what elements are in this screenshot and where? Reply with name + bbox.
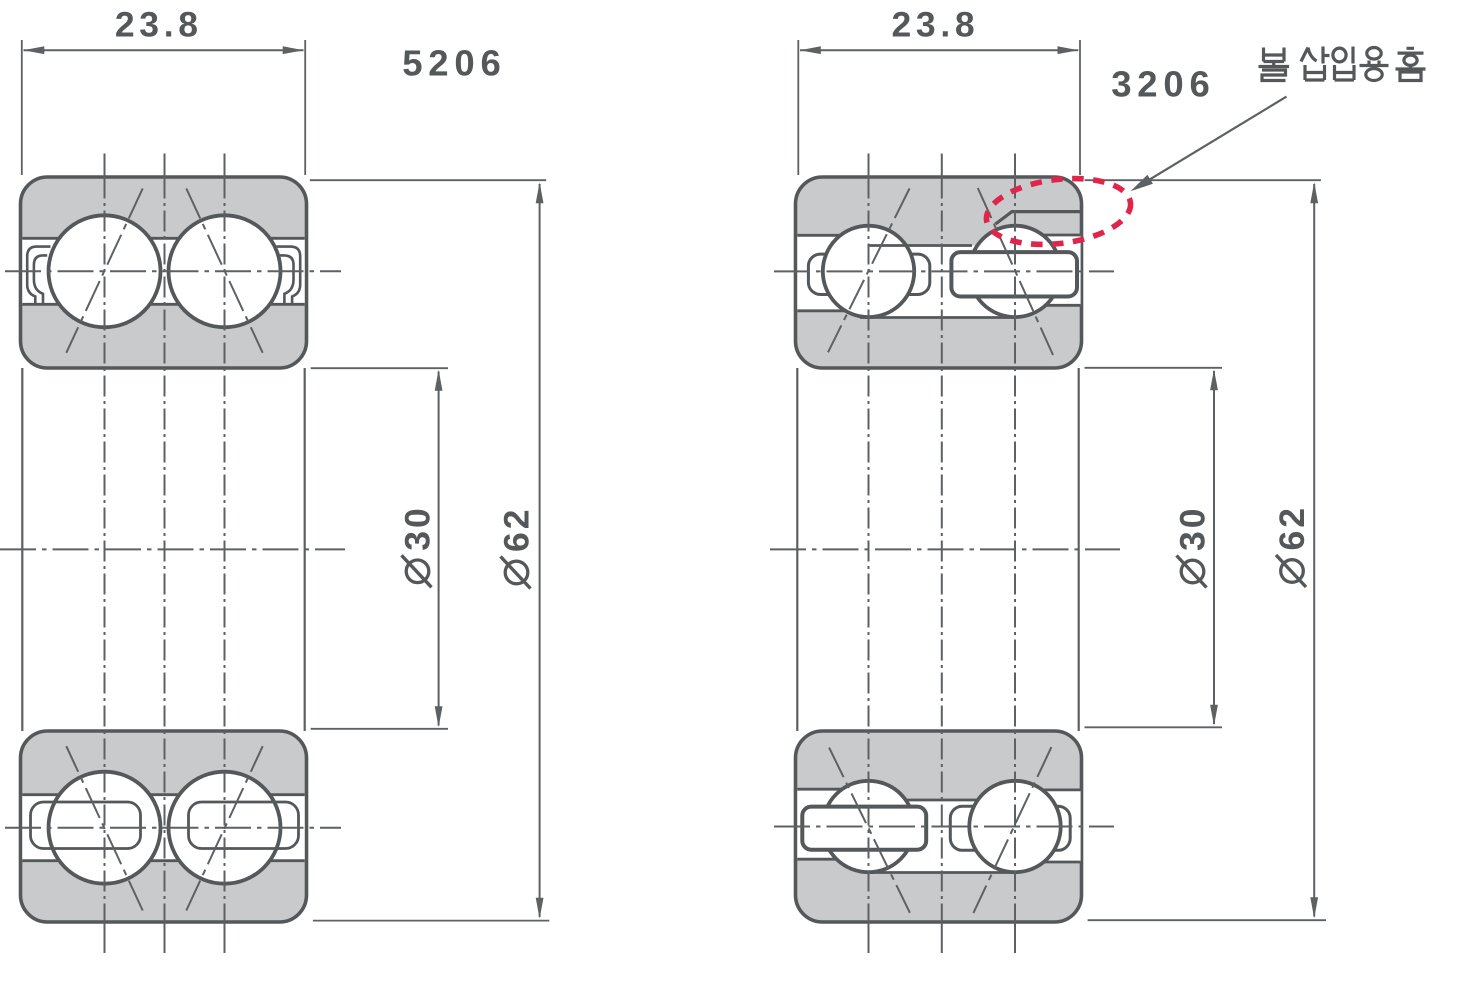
svg-text:23.8: 23.8 [115,4,203,44]
svg-text:62: 62 [497,507,537,553]
svg-text:62: 62 [1272,505,1312,551]
svg-text:30: 30 [398,505,438,551]
svg-text:3206: 3206 [1111,64,1215,105]
svg-text:5206: 5206 [402,43,506,84]
svg-text:30: 30 [1173,506,1213,552]
svg-text:23.8: 23.8 [891,4,979,44]
